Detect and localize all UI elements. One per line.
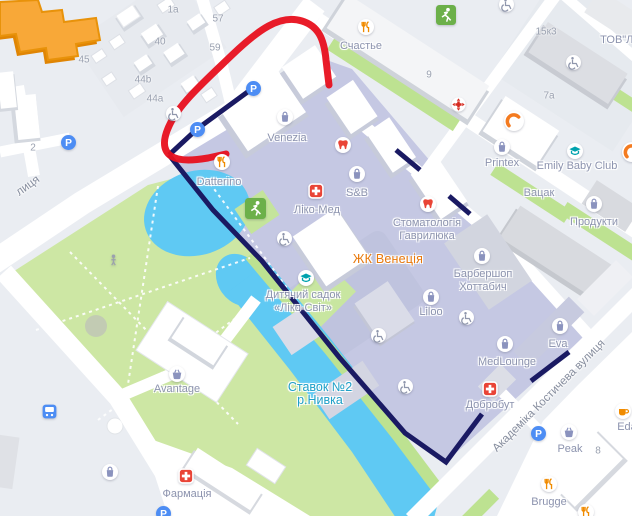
poi-wheelchair-5-wheelchair-icon [398, 379, 413, 394]
poi-brugge-restaurant-icon[interactable] [541, 476, 557, 492]
poi-datterino-restaurant-icon[interactable] [214, 154, 230, 170]
poi-barbershop-bag-icon[interactable] [474, 248, 490, 264]
poi-liloo-label[interactable]: Liloo [419, 306, 442, 319]
poi-produkty-label[interactable]: Продукти [570, 216, 618, 229]
poi-parking-3-parking-icon[interactable]: P [61, 135, 76, 150]
poi-emily-baby-club-label[interactable]: Emily Baby Club [537, 160, 618, 173]
map-canvas[interactable]: СчастьеТОВ"ЛіVeneziaDatterinoЛіко-МедS&B… [0, 0, 632, 516]
poi-stomatology-tooth-icon[interactable] [420, 196, 436, 212]
poi-datterino-label[interactable]: Datterino [197, 176, 242, 189]
poi-venezia-bag-icon[interactable] [277, 109, 293, 125]
poi-produkty-bag-icon[interactable] [586, 196, 602, 212]
poi-liloo-bag-icon[interactable] [423, 289, 439, 305]
poi-playground-2-runner-icon [436, 5, 456, 25]
svg-text:P: P [160, 509, 167, 516]
poi-liko-med-medcross-icon[interactable] [308, 183, 324, 199]
poi-brugge-2-restaurant-icon[interactable] [578, 504, 594, 516]
svg-text:P: P [535, 429, 542, 440]
svg-text:P: P [65, 138, 72, 149]
poi-liko-med-label[interactable]: Ліко-Мед [294, 204, 340, 217]
poi-kindergarten-cap-icon[interactable] [298, 270, 314, 286]
poi-c-logo-2-clogo-icon[interactable] [622, 142, 632, 162]
poi-sb-bag-icon[interactable] [349, 166, 365, 182]
poi-eva-bag-icon[interactable] [552, 318, 568, 334]
poi-parking-4-parking-icon[interactable]: P [531, 426, 546, 441]
building-number-7а: 7а [543, 91, 554, 102]
building-number-59: 59 [209, 43, 220, 54]
poi-wheelchair-1-wheelchair-icon [166, 106, 181, 121]
building-number-8: 8 [595, 446, 601, 457]
poi-schastye-restaurant-icon[interactable] [358, 19, 374, 35]
poi-sb-label[interactable]: S&B [346, 187, 368, 200]
poi-peak-basket-icon[interactable] [561, 424, 577, 440]
poi-medlounge-label[interactable]: MedLounge [478, 356, 536, 369]
poi-c-logo-clogo-icon[interactable] [504, 111, 524, 131]
poi-wheelchair-7-wheelchair-icon [499, 0, 514, 12]
poi-shop-sw-bag-icon[interactable] [102, 464, 118, 480]
building-number-44b: 44b [135, 75, 152, 86]
street-left-label: лиця [14, 174, 42, 199]
poi-printex-label[interactable]: Printex [485, 157, 519, 170]
poi-barbershop-label[interactable]: БарбершопХоттабич [454, 268, 513, 294]
svg-text:P: P [194, 125, 201, 136]
poi-stavok-label[interactable]: Ставок №2р.Нивка [288, 381, 352, 407]
poi-emily-baby-club-cap-icon[interactable] [567, 143, 583, 159]
building-number-9: 9 [426, 70, 432, 81]
building-number-57: 57 [212, 14, 223, 25]
poi-brugge-label[interactable]: Brugge [531, 496, 566, 509]
poi-stomatology-label[interactable]: СтоматологіяГаврилюка [393, 217, 461, 243]
poi-parking-2-parking-icon[interactable]: P [190, 122, 205, 137]
poi-first-aid-firstaid-icon[interactable] [451, 97, 466, 112]
poi-dobrobut-medcross-icon[interactable] [482, 381, 498, 397]
poi-wheelchair-2-wheelchair-icon [277, 231, 292, 246]
poi-tooth-2-tooth-icon[interactable] [335, 137, 351, 153]
poi-tov-label[interactable]: ТОВ"Лі [600, 34, 632, 47]
poi-wheelchair-4-wheelchair-icon [371, 328, 386, 343]
poi-wheelchair-3-wheelchair-icon [459, 310, 474, 325]
poi-kindergarten-label[interactable]: Дитячий садок«Ліко-Світ» [266, 289, 341, 315]
poi-layer: СчастьеТОВ"ЛіVeneziaDatterinoЛіко-МедS&B… [0, 0, 632, 516]
poi-zhk-venetsia-label[interactable]: ЖК Венеція [353, 253, 423, 266]
poi-eda-label[interactable]: Eda [617, 421, 632, 434]
building-number-1a: 1a [167, 5, 178, 16]
poi-playground-1-runner-icon [245, 198, 266, 219]
poi-medlounge-bag-icon[interactable] [497, 336, 513, 352]
poi-venezia-label[interactable]: Venezia [267, 132, 306, 145]
svg-text:P: P [250, 84, 257, 95]
poi-wheelchair-6-wheelchair-icon [566, 55, 581, 70]
poi-printex-bag-icon[interactable] [494, 139, 510, 155]
poi-schastye-label[interactable]: Счастье [340, 40, 382, 53]
poi-vatsak-label[interactable]: Вацак [524, 187, 555, 200]
poi-peak-label[interactable]: Peak [557, 443, 582, 456]
poi-eva-label[interactable]: Eva [549, 338, 568, 351]
poi-pharmacy-medcross-icon[interactable] [178, 468, 194, 484]
poi-avantage-label[interactable]: Avantage [154, 383, 200, 396]
poi-eda-coffee-icon[interactable] [615, 403, 631, 419]
poi-parking-1-parking-icon[interactable]: P [246, 81, 261, 96]
building-number-45: 45 [78, 55, 89, 66]
poi-bus-stop-bus-icon[interactable] [42, 404, 57, 419]
poi-avantage-basket-icon[interactable] [169, 366, 185, 382]
poi-park-person-person-icon [107, 253, 120, 266]
poi-dobrobut-label[interactable]: Добробут [466, 399, 515, 412]
building-number-15к3: 15к3 [535, 27, 556, 38]
building-number-2: 2 [30, 143, 36, 154]
building-number-44a: 44a [147, 94, 164, 105]
poi-pharmacy-label[interactable]: Фармація [163, 488, 212, 501]
building-number-40: 40 [154, 37, 165, 48]
poi-parking-5-parking-icon[interactable]: P [156, 506, 171, 516]
